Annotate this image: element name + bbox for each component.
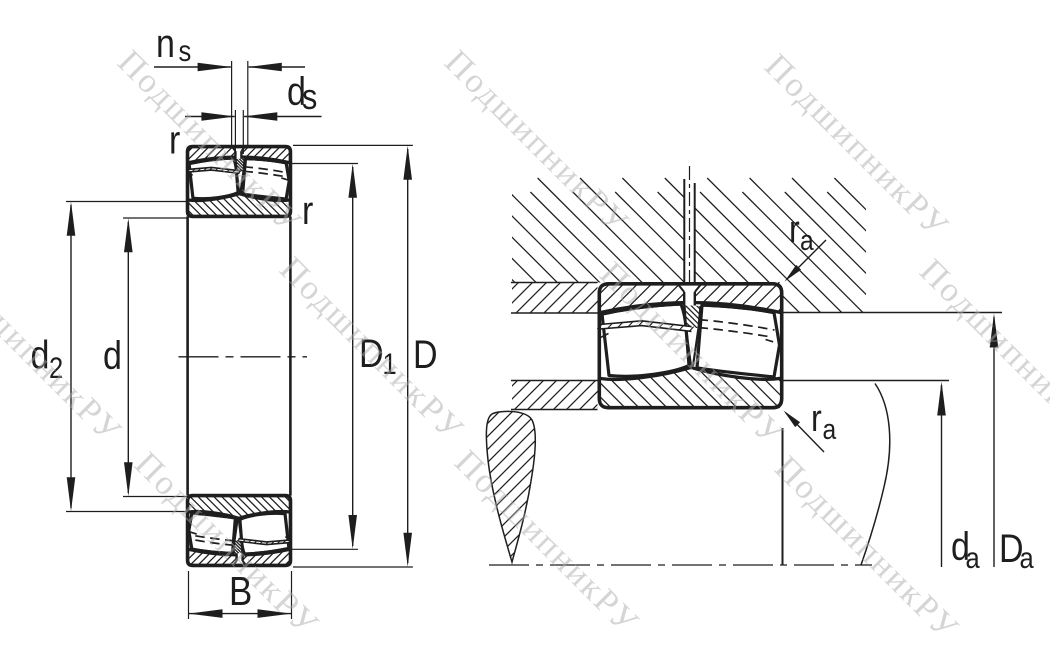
svg-text:a: a xyxy=(823,413,837,445)
svg-text:r: r xyxy=(811,398,822,440)
svg-text:n: n xyxy=(156,20,175,65)
svg-text:s: s xyxy=(179,34,192,67)
svg-text:r: r xyxy=(789,209,800,251)
svg-text:a: a xyxy=(966,541,981,574)
svg-text:d: d xyxy=(103,332,122,377)
svg-text:s: s xyxy=(302,78,317,118)
svg-text:a: a xyxy=(1020,541,1035,574)
svg-text:a: a xyxy=(800,224,814,256)
